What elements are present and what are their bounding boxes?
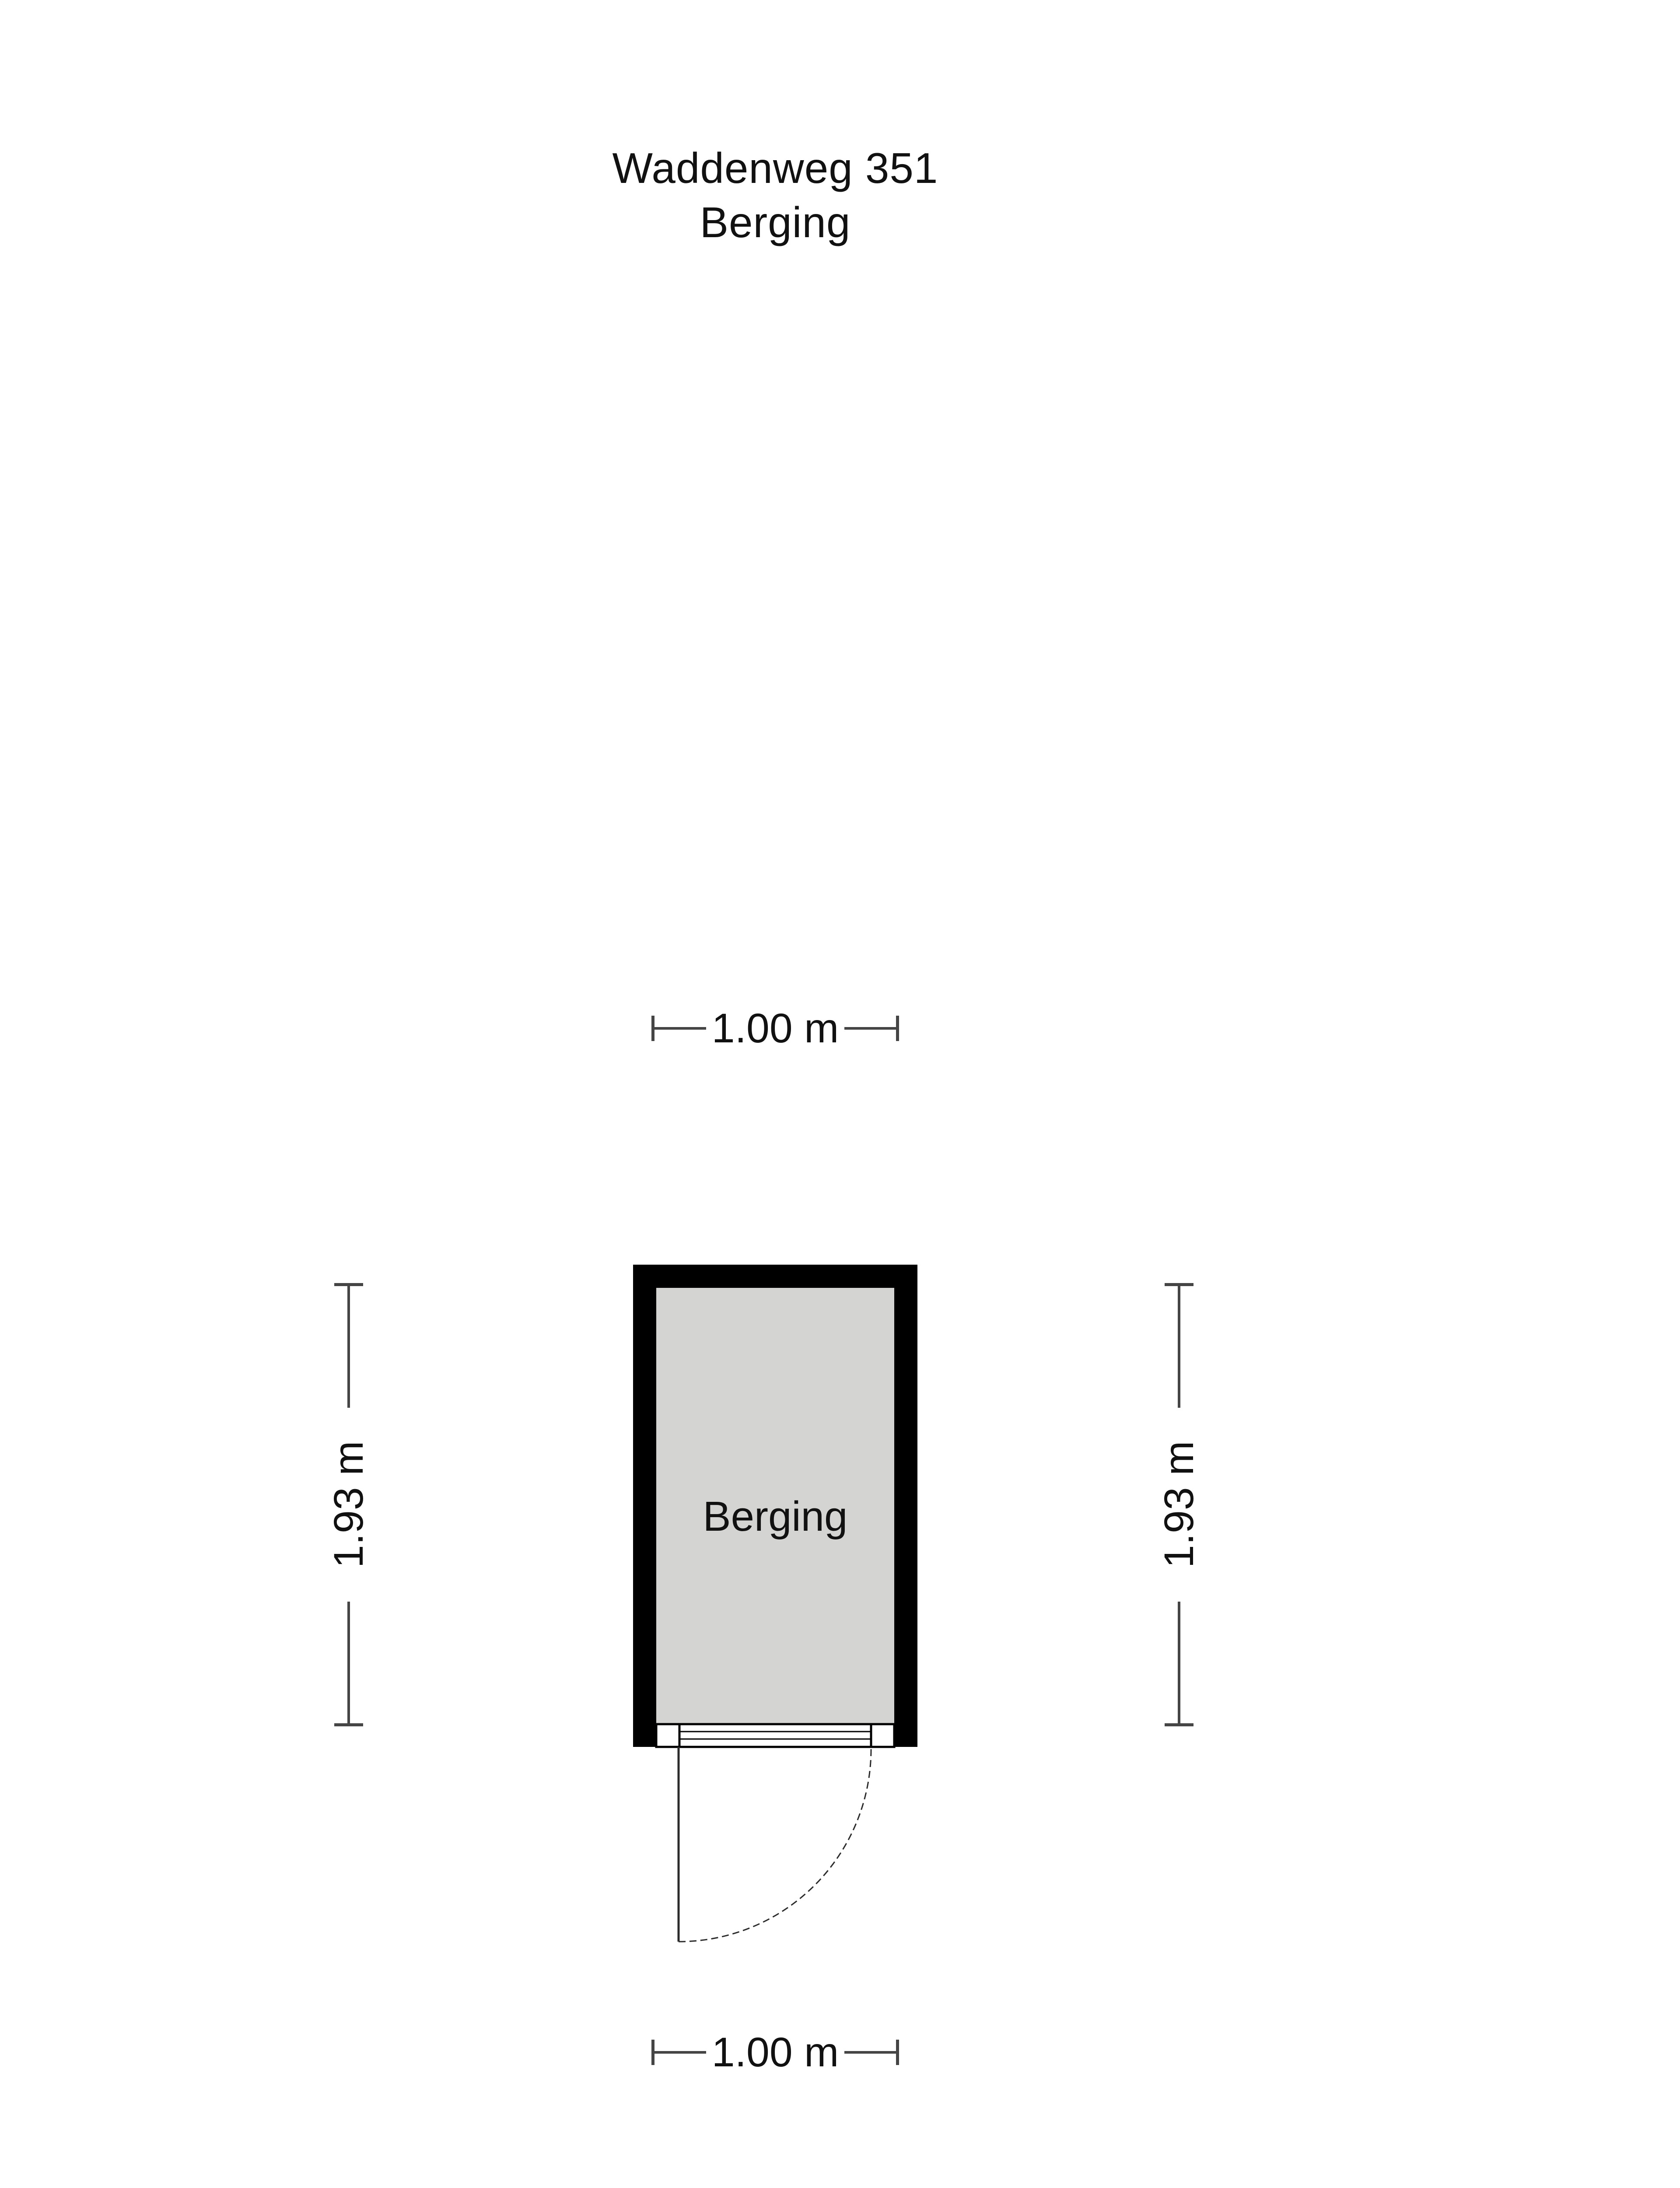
dimension-line xyxy=(844,1027,896,1030)
room-label: Berging xyxy=(703,1493,848,1540)
dimension-tick xyxy=(651,2040,654,2065)
dimension-label-left: 1.93 m xyxy=(323,1404,374,1605)
floorplan-page: Waddenweg 351 Berging 1.00 m 1.93 m 1.93… xyxy=(0,0,1680,2188)
door-sill xyxy=(656,1724,894,1747)
dimension-label-right: 1.93 m xyxy=(1154,1404,1204,1605)
title-room-type: Berging xyxy=(338,195,1213,249)
dimension-line xyxy=(347,1602,350,1723)
dimension-tick xyxy=(896,1016,899,1041)
door-swing-arc xyxy=(679,1749,871,1942)
dimension-line xyxy=(654,1027,706,1030)
dimension-tick xyxy=(334,1283,363,1286)
dimension-line xyxy=(1178,1286,1180,1408)
dimension-tick xyxy=(651,1016,654,1041)
dimension-tick xyxy=(1165,1283,1193,1286)
dimension-line xyxy=(844,2051,896,2054)
dimension-tick xyxy=(1165,1723,1193,1726)
floorplan-drawing: Berging xyxy=(633,1265,939,1965)
drawing-title: Waddenweg 351 Berging xyxy=(338,141,1213,249)
dimension-line xyxy=(654,2051,706,2054)
dimension-tick xyxy=(896,2040,899,2065)
dimension-line xyxy=(347,1286,350,1408)
dimension-label-top: 1.00 m xyxy=(705,1003,845,1054)
dimension-label-bottom: 1.00 m xyxy=(705,2027,845,2078)
dimension-line xyxy=(1178,1602,1180,1723)
title-address: Waddenweg 351 xyxy=(338,141,1213,195)
dimension-tick xyxy=(334,1723,363,1726)
